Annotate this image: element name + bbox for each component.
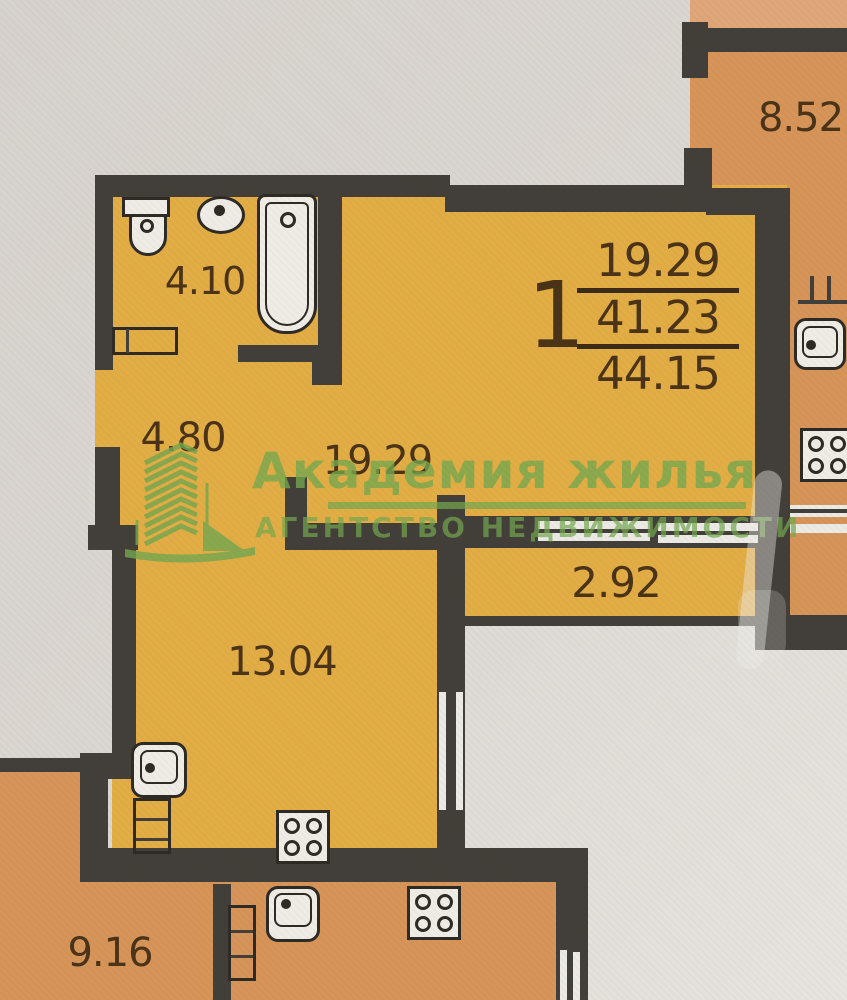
wall: [755, 205, 790, 650]
cabinet-divider: [126, 329, 129, 353]
burner-icon: [830, 458, 846, 474]
bathtub-drain-icon: [280, 212, 296, 228]
kitchen-sink-bowl-icon: [274, 893, 312, 927]
wall: [437, 495, 465, 882]
neighbor-right-unit-fill: [790, 195, 847, 622]
cabinet-icon: [228, 905, 256, 981]
agency-logo-icon: [115, 425, 270, 575]
cabinet-line: [798, 300, 847, 304]
window: [573, 952, 580, 1000]
wall: [690, 28, 847, 52]
room-area-label-balcony: 2.92: [556, 562, 676, 604]
toilet-flush-icon: [140, 219, 154, 233]
burner-icon: [415, 916, 431, 932]
kitchen-sink-drain-icon: [281, 899, 291, 909]
cabinet-line: [827, 276, 831, 300]
wall: [312, 345, 342, 385]
cabinet-line: [231, 955, 253, 958]
window: [560, 950, 567, 1000]
floor-plan: 4.10 4.80 19.29 2.92 13.04 9.16 8.52 1 1…: [0, 0, 847, 1000]
apartment-area-no-balcony: 41.23: [577, 293, 739, 350]
burner-icon: [415, 894, 431, 910]
cabinet-icon: [112, 327, 178, 355]
apartment-living-area: 19.29: [577, 236, 739, 293]
kitchen-cabinet-icon: [133, 798, 171, 854]
burner-icon: [306, 818, 322, 834]
room-area-label-kitchen: 13.04: [212, 642, 352, 682]
burner-icon: [830, 436, 846, 452]
cabinet-line: [810, 276, 814, 300]
burner-icon: [808, 436, 824, 452]
kitchen-cabinet-line: [136, 818, 168, 821]
neighbor-top-outer-fill: [690, 0, 847, 30]
room-area-label-bathroom: 4.10: [150, 262, 260, 300]
watermark-agency-name: Академия жилья: [252, 446, 757, 496]
burner-icon: [284, 840, 300, 856]
stove-icon: [276, 810, 330, 864]
wall: [318, 175, 342, 355]
stove-icon: [800, 428, 847, 482]
apartment-total-area: 44.15: [577, 349, 739, 401]
apartment-areas-fraction: 19.29 41.23 44.15: [577, 236, 739, 401]
cabinet-line: [231, 930, 253, 933]
apartment-number: 1: [527, 270, 584, 362]
window: [456, 692, 463, 810]
wall: [112, 548, 136, 763]
window: [439, 692, 446, 810]
burner-icon: [284, 818, 300, 834]
kitchen-sink-drain-icon: [145, 763, 155, 773]
room-area-label-neighbor-bottom: 9.16: [50, 933, 170, 973]
wall: [95, 175, 113, 370]
room-area-label-neighbor-top: 8.52: [748, 98, 847, 138]
kitchen-cabinet-line: [136, 838, 168, 841]
stove-icon: [407, 886, 461, 940]
wall: [788, 615, 847, 650]
watermark-agency-tagline: АГЕНТСТВО НЕДВИЖИМОСТИ: [255, 514, 801, 542]
burner-icon: [808, 458, 824, 474]
wall: [463, 616, 760, 626]
washbasin-drain-icon: [214, 205, 225, 216]
kitchen-sink-drain-icon: [806, 340, 816, 350]
watermark-underline: [328, 502, 746, 509]
burner-icon: [437, 916, 453, 932]
wall: [445, 185, 712, 212]
wall: [0, 758, 82, 772]
burner-icon: [306, 840, 322, 856]
burner-icon: [437, 894, 453, 910]
wall: [682, 22, 708, 78]
